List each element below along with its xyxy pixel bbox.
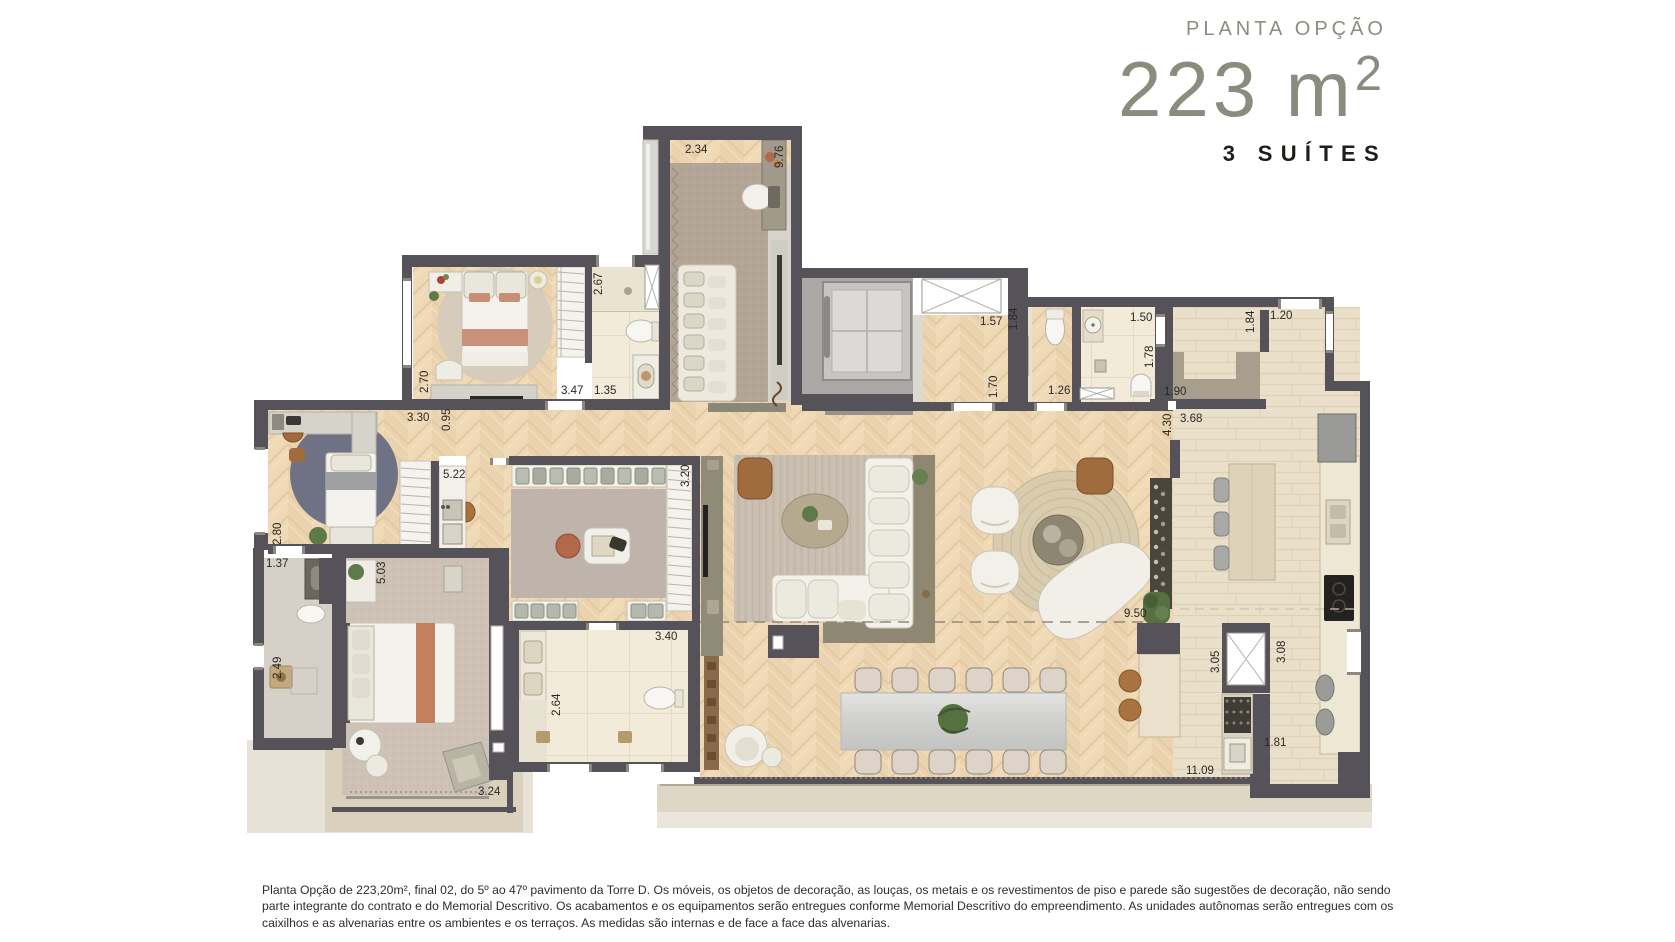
svg-text:3.20: 3.20 (680, 465, 692, 487)
svg-text:1.57: 1.57 (980, 316, 1002, 328)
svg-text:1.84: 1.84 (1008, 307, 1020, 330)
svg-text:5.03: 5.03 (376, 562, 388, 584)
svg-text:3.47: 3.47 (561, 385, 583, 397)
svg-text:1.37: 1.37 (266, 558, 288, 570)
svg-text:0.95: 0.95 (441, 409, 453, 431)
svg-text:1.84: 1.84 (1245, 310, 1257, 333)
svg-text:1.26: 1.26 (1048, 385, 1070, 397)
svg-text:2.80: 2.80 (272, 523, 284, 545)
svg-text:3.40: 3.40 (655, 631, 677, 643)
svg-text:5.22: 5.22 (443, 469, 465, 481)
svg-text:1.50: 1.50 (1130, 312, 1152, 324)
svg-text:1.70: 1.70 (988, 376, 1000, 398)
svg-text:9.50: 9.50 (1124, 608, 1146, 620)
svg-text:2.70: 2.70 (419, 371, 431, 393)
svg-text:1.90: 1.90 (1164, 386, 1186, 398)
svg-text:3.08: 3.08 (1276, 641, 1288, 663)
svg-text:3.68: 3.68 (1180, 413, 1202, 425)
svg-text:2.49: 2.49 (272, 657, 284, 679)
svg-text:2.64: 2.64 (551, 693, 563, 716)
svg-text:11.09: 11.09 (1186, 765, 1214, 777)
svg-text:1.20: 1.20 (1270, 310, 1292, 322)
svg-text:1.35: 1.35 (594, 385, 616, 397)
svg-text:9.76: 9.76 (774, 146, 786, 168)
svg-text:3.30: 3.30 (407, 412, 429, 424)
svg-text:2.67: 2.67 (593, 273, 605, 295)
svg-text:1.81: 1.81 (1264, 737, 1286, 749)
svg-text:3.05: 3.05 (1210, 651, 1222, 673)
svg-text:2.34: 2.34 (685, 144, 708, 156)
svg-text:1.78: 1.78 (1144, 346, 1156, 368)
svg-text:3.24: 3.24 (478, 786, 501, 798)
svg-text:4.30: 4.30 (1162, 414, 1174, 436)
